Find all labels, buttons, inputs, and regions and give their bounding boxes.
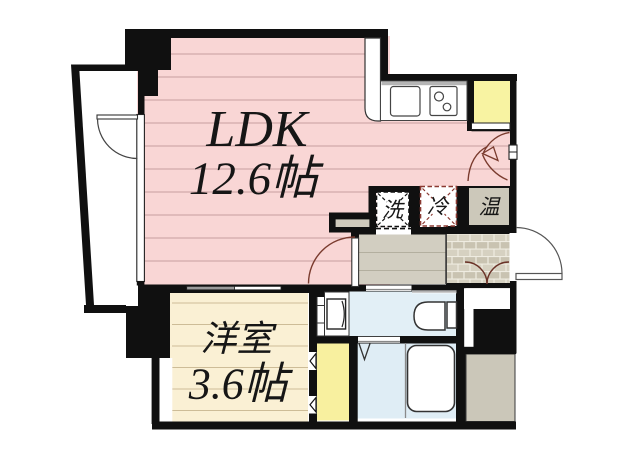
- svg-text:冷: 冷: [427, 195, 450, 219]
- svg-text:洗: 洗: [382, 198, 405, 222]
- svg-text:LDK: LDK: [205, 101, 309, 158]
- svg-text:3.6帖: 3.6帖: [188, 360, 294, 409]
- svg-text:12.6帖: 12.6帖: [189, 153, 324, 205]
- svg-text:温: 温: [479, 195, 502, 219]
- svg-text:洋室: 洋室: [200, 319, 277, 359]
